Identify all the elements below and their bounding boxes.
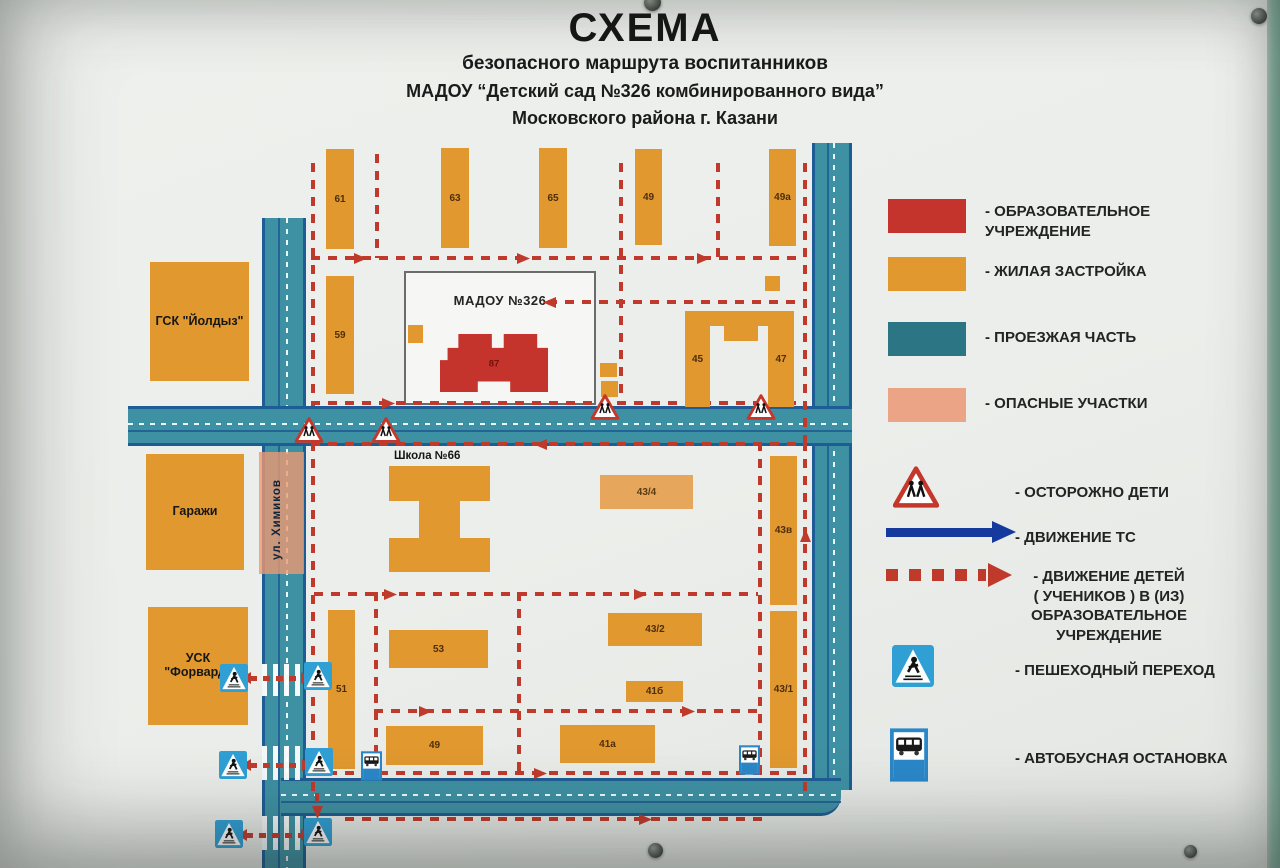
building-block (600, 363, 617, 377)
pedestrian-crossing-sign-icon (220, 664, 248, 692)
street-name-label: ул. Химиков (271, 465, 289, 575)
building-59: 59 (326, 276, 354, 394)
bus-stop-sign-icon (739, 745, 760, 775)
legend-roadway-label: - ПРОЕЗЖАЯ ЧАСТЬ (985, 328, 1136, 348)
legend-residential-label: - ЖИЛАЯ ЗАСТРОЙКА (985, 262, 1147, 282)
legend-education-swatch (888, 199, 966, 233)
board-title: СХЕМА безопасного маршрута воспитанников… (290, 6, 1000, 129)
children-route-segment (619, 163, 623, 403)
legend-roadway-swatch (888, 322, 966, 356)
vehicle-movement-arrow-icon (886, 521, 1018, 543)
pedestrian-crossing-sign-icon (305, 748, 333, 776)
building-41б: 41б (626, 681, 683, 702)
building-41а: 41а (560, 725, 655, 763)
children-route-segment (374, 709, 758, 713)
children-warning-sign-icon (590, 394, 620, 420)
vehicle-arrow-head (992, 521, 1016, 543)
building-43-2: 43/2 (608, 613, 702, 646)
children-route-segment (314, 592, 758, 596)
madou-territory-box: МАДОУ №326 (404, 271, 596, 405)
title-main: СХЕМА (290, 6, 1000, 50)
building-49: 49 (635, 149, 662, 245)
building-43-1: 43/1 (770, 611, 797, 768)
legend-pedestrian-crossing-label: - ПЕШЕХОДНЫЙ ПЕРЕХОД (1015, 661, 1215, 681)
building-65: 65 (539, 148, 567, 248)
pedestrian-crossing-sign-icon (304, 818, 332, 846)
pedestrian-crossing-sign-icon (304, 662, 332, 690)
crossing-double-arrow (250, 763, 303, 768)
route-arrow-right (682, 705, 695, 718)
road-bottom-street (281, 778, 841, 816)
bus-stop-sign-icon (890, 728, 928, 782)
legend-residential-swatch (888, 257, 966, 291)
children-warning-sign-icon (371, 417, 401, 443)
road-main-street (128, 406, 852, 446)
building-block (724, 311, 758, 341)
children-route-segment (375, 154, 379, 258)
vehicle-arrow-shaft (886, 528, 994, 537)
children-route-segment (374, 592, 378, 773)
map-area: ул. Химиков МАДОУ №326 87 Школа №66 6163… (0, 0, 1280, 868)
building-block (765, 276, 780, 291)
building-block (419, 501, 460, 538)
children-arrow-shaft (886, 569, 986, 581)
children-route-segment (311, 442, 315, 794)
pedestrian-crossing-sign-icon (215, 820, 243, 848)
mounting-bolt (1251, 8, 1267, 24)
school-66-label: Школа №66 (394, 450, 460, 462)
building-43-4: 43/4 (600, 475, 693, 509)
legend-bus-stop-label: - АВТОБУСНАЯ ОСТАНОВКА (1015, 749, 1227, 769)
title-sub-3: Московского района г. Казани (290, 108, 1000, 129)
route-scheme-board: СХЕМА безопасного маршрута воспитанников… (0, 0, 1280, 868)
pedestrian-crossing-sign-icon (892, 645, 934, 687)
pedestrian-crossing-sign-icon (219, 751, 247, 779)
building-53: 53 (389, 630, 488, 668)
children-warning-sign-icon (294, 417, 324, 443)
building-63: 63 (441, 148, 469, 248)
building-гаражи: Гаражи (146, 454, 244, 570)
building-49: 49 (386, 726, 483, 765)
children-route-segment (311, 256, 804, 260)
mounting-bolt (648, 843, 663, 858)
children-warning-sign-icon (893, 466, 939, 508)
route-arrow-up (799, 529, 812, 542)
children-route-segment (758, 442, 762, 772)
building-гск-йолдыз: ГСК "Йолдыз" (150, 262, 249, 381)
legend-children-warning-label: - ОСТОРОЖНО ДЕТИ (1015, 483, 1169, 503)
building-51: 51 (328, 610, 355, 769)
crossing-double-arrow (246, 833, 302, 838)
title-sub-1: безопасного маршрута воспитанников (290, 53, 1000, 75)
route-arrow-right (384, 588, 397, 601)
route-arrow-right (634, 588, 647, 601)
wall-edge (1267, 0, 1280, 868)
road-right-street (812, 143, 852, 790)
children-route-segment (345, 817, 765, 821)
children-route-arrow-icon (886, 563, 1016, 587)
route-arrow-right (697, 252, 710, 265)
legend-vehicle-movement-label: - ДВИЖЕНИЕ ТС (1015, 528, 1136, 548)
mounting-bolt (1184, 845, 1197, 858)
bus-stop-sign-icon (361, 751, 382, 781)
building-block (389, 538, 490, 572)
route-arrow-right (354, 252, 367, 265)
children-route-segment (311, 771, 804, 775)
building-43в: 43в (770, 456, 797, 605)
legend-danger-label: - ОПАСНЫЕ УЧАСТКИ (985, 394, 1147, 414)
children-route-segment (803, 442, 807, 794)
route-arrow-right (419, 705, 432, 718)
legend-danger-swatch (888, 388, 966, 422)
legend-education-label: - ОБРАЗОВАТЕЛЬНОЕ УЧРЕЖДЕНИЕ (985, 202, 1150, 241)
building-49а: 49а (769, 149, 796, 246)
children-route-segment (311, 163, 315, 406)
children-route-segment (716, 163, 720, 258)
building-block (408, 325, 423, 343)
building-61: 61 (326, 149, 354, 249)
children-warning-sign-icon (746, 394, 776, 420)
children-route-segment (548, 300, 804, 304)
crossing-double-arrow (250, 676, 302, 681)
title-sub-2: МАДОУ “Детский сад №326 комбинированного… (290, 81, 1000, 102)
legend-children-route-label: - ДВИЖЕНИЕ ДЕТЕЙ ( УЧЕНИКОВ ) В (ИЗ) ОБР… (1005, 567, 1213, 645)
madou-building-number: 87 (489, 359, 500, 370)
route-arrow-right (517, 252, 530, 265)
children-route-segment (517, 592, 521, 775)
building-block (389, 466, 490, 501)
